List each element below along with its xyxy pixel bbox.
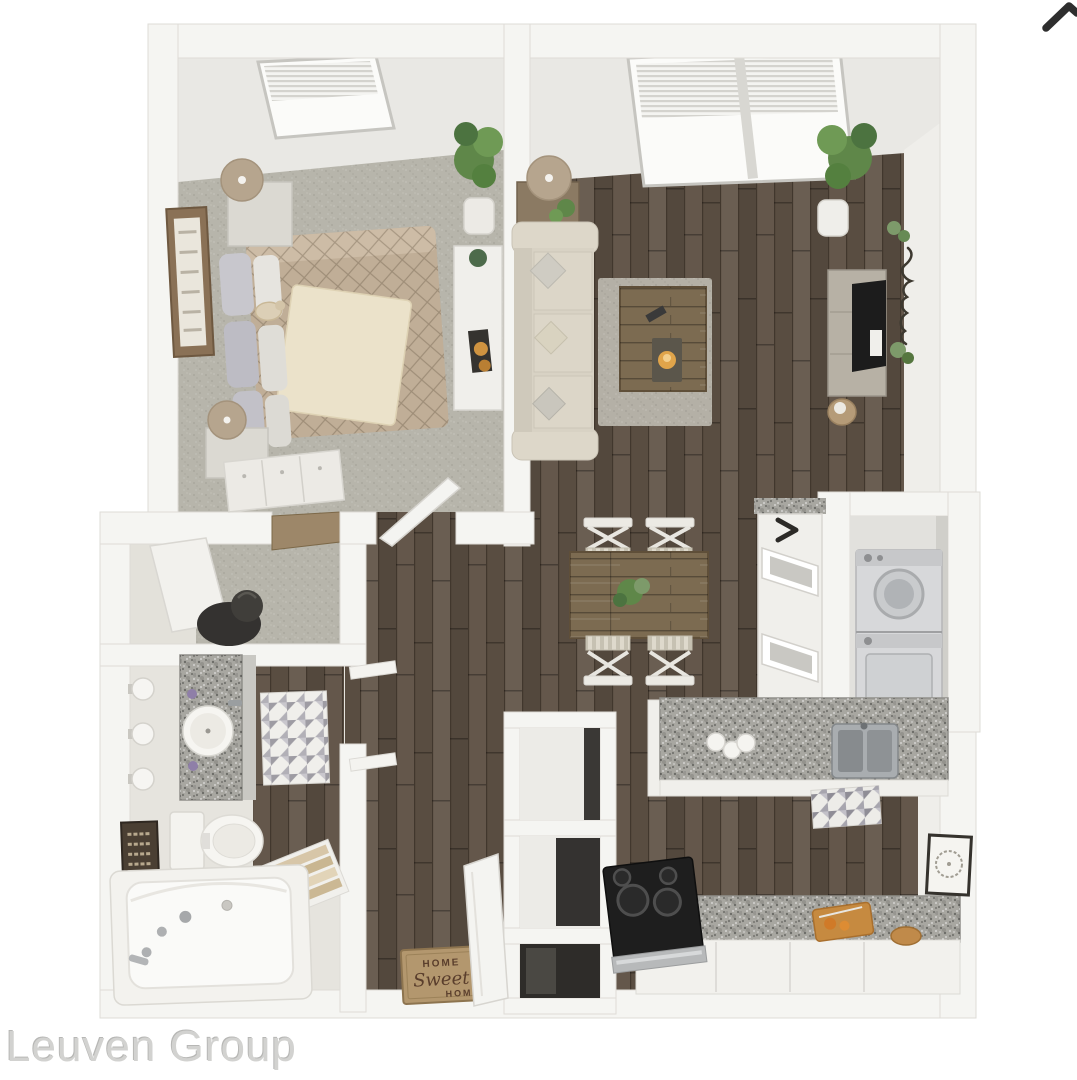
bedroom-window-blinds xyxy=(264,61,378,101)
watermark: Leuven Group xyxy=(6,1022,297,1072)
dish-mat xyxy=(811,786,881,829)
bedroom-plant-pot xyxy=(464,198,494,234)
vanity-side-panel xyxy=(242,655,256,800)
tv-soundbar xyxy=(870,330,882,356)
chair-top-rail xyxy=(646,676,694,685)
tv-screen xyxy=(852,280,886,372)
shower-curtain xyxy=(260,691,329,785)
living-right-wall-face xyxy=(904,120,944,512)
sink-drain xyxy=(206,729,211,734)
pillow-white-2 xyxy=(258,324,289,392)
soap-jar-1 xyxy=(187,689,197,699)
laundry-wall-right xyxy=(948,492,980,732)
living-plant-pot xyxy=(818,200,848,236)
bowl-3 xyxy=(737,734,755,752)
tub-drain xyxy=(222,900,232,910)
washer-dryer-stack xyxy=(856,550,942,710)
dining-table xyxy=(570,552,708,638)
wall-bath-east-upper xyxy=(340,544,366,660)
curtain-pattern xyxy=(260,691,329,785)
kitchen-sink xyxy=(832,723,898,779)
hall-closet-divider-2 xyxy=(504,928,616,944)
sofa xyxy=(512,222,598,460)
lamp-finial-top xyxy=(238,176,246,184)
wall-bedroom-south-b xyxy=(340,512,376,544)
laundry-closet xyxy=(850,516,948,710)
console-plant xyxy=(469,249,487,267)
dryer-door-window xyxy=(884,579,914,609)
hall-closet-cell-bottom-shade xyxy=(526,948,556,994)
dish-mat-pattern xyxy=(811,786,881,829)
bed xyxy=(217,225,449,450)
chair-cushion xyxy=(586,636,630,650)
sofa-back xyxy=(514,248,532,432)
bakers-rack xyxy=(754,498,826,704)
kitchen-wall-art xyxy=(926,835,971,895)
vanity xyxy=(180,655,256,800)
bedroom-plant-leaves-3 xyxy=(454,122,478,146)
coffee-table xyxy=(620,287,706,391)
pillow-gray-1 xyxy=(218,252,254,316)
bread-loaf xyxy=(891,927,921,945)
peninsula-front-edge xyxy=(660,780,948,796)
sink-faucet xyxy=(861,723,868,730)
living-plant-leaves-3 xyxy=(851,123,877,149)
hall-closet-cell-top-door-gap xyxy=(584,728,600,820)
living-plant-leaves-4 xyxy=(825,163,851,189)
floor-plan-render: HOME Sweet HOME xyxy=(0,0,1077,1080)
side-table-greenery-2 xyxy=(549,209,563,223)
bedroom-console xyxy=(454,246,502,410)
laundry-wall-left xyxy=(818,492,850,732)
vanity-faucet xyxy=(228,700,242,706)
sofa-armrest-bottom xyxy=(512,428,598,460)
chair-top-rail xyxy=(646,518,694,527)
sconce-bulb-3 xyxy=(132,768,154,790)
washer-dial xyxy=(864,637,872,645)
toilet-seat xyxy=(213,824,255,858)
dark-bag xyxy=(231,590,263,622)
bathtub xyxy=(110,865,313,1006)
toilet-tank xyxy=(170,812,204,870)
wall-top xyxy=(148,24,962,58)
bedroom-plant-leaves-4 xyxy=(472,164,496,188)
hall-closet-wall-bottom xyxy=(504,998,616,1014)
burner-4 xyxy=(659,867,677,885)
centerpiece-plant-3 xyxy=(613,593,627,607)
burner-3 xyxy=(613,869,631,887)
chair-top-rail xyxy=(584,518,632,527)
bedroom-wall-art xyxy=(166,207,214,357)
hall-closet-wall-top xyxy=(504,712,616,728)
toilet-hinge xyxy=(202,833,210,849)
living-lamp-finial xyxy=(545,174,553,182)
sconce-bulb-1 xyxy=(132,678,154,700)
lamp-finial-bottom xyxy=(224,417,231,424)
sconce-bulb-2 xyxy=(132,723,154,745)
pillow-gray-2 xyxy=(223,320,260,388)
living-window xyxy=(628,50,854,186)
chair-top-rail xyxy=(584,676,632,685)
sink-basin-right xyxy=(867,730,892,772)
wall-sprig-top-2 xyxy=(898,230,910,242)
dryer-dial xyxy=(864,554,872,562)
bedroom-window xyxy=(258,56,394,138)
throw-blanket xyxy=(276,284,412,425)
burner-2 xyxy=(653,888,682,917)
washer-door xyxy=(866,654,932,702)
dryer-dial-2 xyxy=(877,555,883,561)
candle-flame xyxy=(663,354,671,362)
chair-cushion xyxy=(648,636,692,650)
wall-bedroom-south-c xyxy=(456,512,534,544)
centerpiece-plant-2 xyxy=(634,578,650,594)
blanket xyxy=(276,284,412,425)
living-plant-leaves-2 xyxy=(817,125,847,155)
sink-basin-left xyxy=(838,730,863,772)
wall-sprig-bottom-2 xyxy=(902,352,914,364)
hall-closet-interiors xyxy=(520,728,600,998)
hall-closet-divider-1 xyxy=(504,820,616,836)
soap-jar-2 xyxy=(188,761,198,771)
wall-bedroom-south-a xyxy=(100,512,272,544)
toilet xyxy=(170,812,263,870)
carousel-next-chevron-icon[interactable] xyxy=(1046,6,1077,28)
basket-cloth xyxy=(834,402,846,414)
rack-granite-texture xyxy=(754,498,826,514)
peninsula-granite-texture xyxy=(660,698,948,780)
bowl-1 xyxy=(707,733,725,751)
floor-plan-screenshot: HOME Sweet HOME xyxy=(0,0,1077,1080)
stove xyxy=(601,856,707,973)
tv-console xyxy=(828,270,886,396)
hall-closet-dark-door xyxy=(556,838,600,926)
console-body xyxy=(454,246,502,410)
